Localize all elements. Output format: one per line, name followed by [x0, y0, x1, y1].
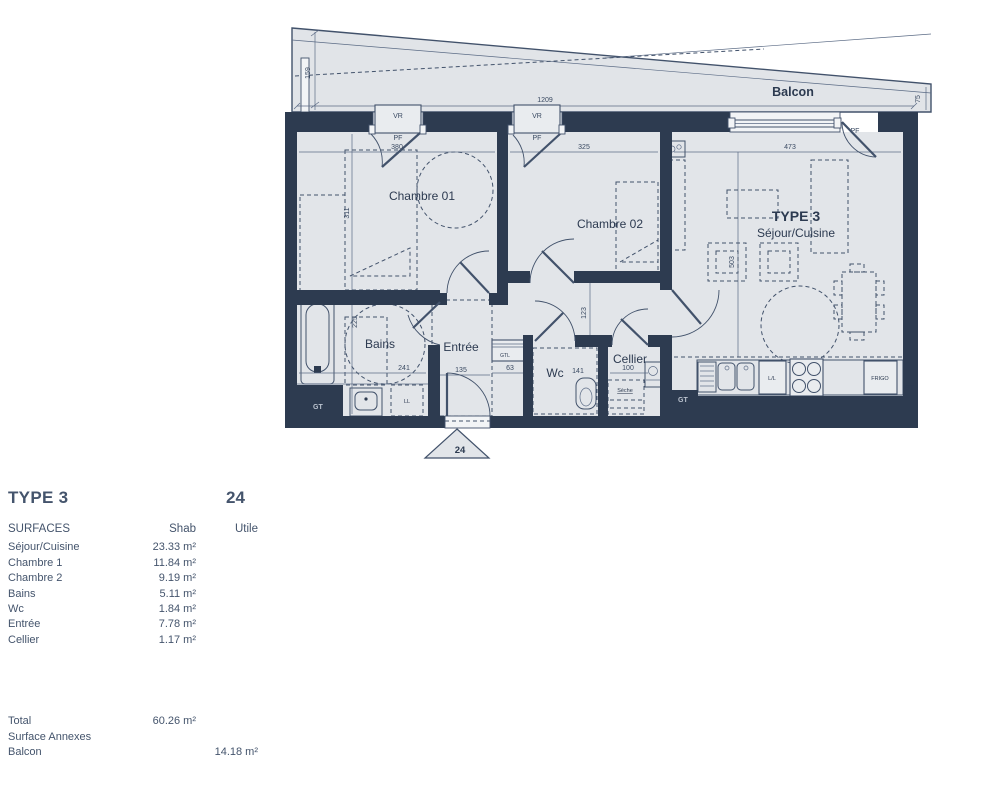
row-label: Cellier — [8, 633, 106, 648]
dim-niche: 63 — [506, 365, 514, 372]
table-row: Bains 5.11 m² — [8, 587, 258, 602]
dim-corridor: 123 — [581, 307, 588, 319]
gt-label-bains: GT — [313, 404, 323, 411]
table-row: Wc 1.84 m² — [8, 602, 258, 617]
dim-sejour-width: 473 — [784, 144, 796, 151]
row-utile — [196, 556, 258, 571]
col-header-shab: Shab — [106, 522, 196, 537]
dim-ch1-width: 380 — [391, 144, 403, 151]
balcon-row: Balcon 14.18 m² — [8, 745, 258, 760]
entrance-sill — [445, 416, 490, 428]
total-label: Total — [8, 714, 106, 729]
room-label-entree: Entrée — [443, 340, 479, 354]
table-row: Cellier 1.17 m² — [8, 633, 258, 648]
dim-balcony-left: 159 — [305, 67, 312, 79]
balcon-label: Balcon — [8, 745, 106, 760]
table-unit-number: 24 — [226, 488, 245, 508]
dim-bains-width: 241 — [398, 365, 410, 372]
unit-number: 24 — [455, 445, 466, 456]
row-utile — [196, 602, 258, 617]
balcony: 1209 159 75 Balcon — [292, 28, 931, 112]
annexes-row: Surface Annexes — [8, 730, 258, 745]
annexes-label: Surface Annexes — [8, 730, 106, 745]
balcony-pier — [301, 58, 309, 112]
dim-balcony-right: 75 — [915, 95, 922, 103]
gt-label-kitchen: GT — [904, 385, 914, 392]
washing-machine-label: LL — [404, 399, 410, 405]
table-column-headers: SURFACES Shab Utile — [8, 522, 258, 537]
row-utile — [196, 633, 258, 648]
table-row: Séjour/Cuisine 23.33 m² — [8, 540, 258, 555]
row-utile — [196, 587, 258, 602]
dryer-label: Sèche — [617, 388, 633, 394]
window-sejour — [730, 112, 840, 132]
surface-table-header: TYPE 3 24 — [8, 488, 258, 522]
total-row: Total 60.26 m² — [8, 714, 258, 729]
row-label: Wc — [8, 602, 106, 617]
table-row: Entrée 7.78 m² — [8, 617, 258, 632]
row-shab: 9.19 m² — [106, 571, 196, 586]
row-label: Chambre 2 — [8, 571, 106, 586]
gtl-label: GTL — [500, 353, 510, 359]
dim-ch1-height: 311 — [344, 207, 351, 218]
fridge-label: FRIGO — [871, 376, 889, 382]
row-label: Chambre 1 — [8, 556, 106, 571]
row-shab: 7.78 m² — [106, 617, 196, 632]
vr-label-ch2: VR — [532, 113, 542, 120]
row-label: Entrée — [8, 617, 106, 632]
dim-balcony-width: 1209 — [537, 97, 553, 104]
room-label-bains: Bains — [365, 337, 395, 351]
col-header-surfaces: SURFACES — [8, 522, 106, 537]
dim-sejour-height: 503 — [729, 256, 736, 268]
dim-bains-height: 225 — [352, 316, 359, 328]
page: 1209 159 75 Balcon — [0, 0, 1000, 800]
room-label-cellier: Cellier — [613, 352, 647, 366]
room-label-sejour: Séjour/Cuisine — [757, 226, 835, 240]
room-label-chambre1: Chambre 01 — [389, 189, 455, 203]
balcony-label: Balcon — [772, 85, 814, 99]
surface-table: TYPE 3 24 SURFACES Shab Utile Séjour/Cui… — [8, 488, 258, 760]
row-utile — [196, 540, 258, 555]
col-header-utile: Utile — [196, 522, 258, 537]
room-label-chambre2: Chambre 02 — [577, 217, 643, 231]
floor-plan: 1209 159 75 Balcon — [0, 0, 1000, 470]
row-shab: 1.17 m² — [106, 633, 196, 648]
row-label: Séjour/Cuisine — [8, 540, 106, 555]
unit-marker: 24 — [425, 429, 489, 458]
room-label-wc: Wc — [546, 366, 563, 380]
dim-wc: 141 — [572, 368, 584, 375]
bathtub-drain — [314, 366, 321, 373]
balcon-value: 14.18 m² — [196, 745, 258, 760]
vr-label-ch1: VR — [393, 113, 403, 120]
table-summary: Total 60.26 m² Surface Annexes Balcon 14… — [8, 714, 258, 760]
table-row: Chambre 2 9.19 m² — [8, 571, 258, 586]
pf-label-ch2: PF — [533, 135, 542, 142]
row-utile — [196, 617, 258, 632]
row-label: Bains — [8, 587, 106, 602]
row-shab: 23.33 m² — [106, 540, 196, 555]
gt-label-cellier: GT — [678, 397, 688, 404]
total-value: 60.26 m² — [106, 714, 196, 729]
row-shab: 11.84 m² — [106, 556, 196, 571]
row-utile — [196, 571, 258, 586]
dim-cellier: 100 — [622, 365, 634, 372]
row-shab: 1.84 m² — [106, 602, 196, 617]
pf-label-ch1: PF — [394, 135, 403, 142]
dishwasher-label: L/L — [768, 376, 776, 382]
row-shab: 5.11 m² — [106, 587, 196, 602]
table-row: Chambre 1 11.84 m² — [8, 556, 258, 571]
dim-ch2-width: 325 — [578, 144, 590, 151]
dim-entree: 135 — [455, 367, 467, 374]
type-label: TYPE 3 — [772, 208, 820, 224]
table-title: TYPE 3 — [8, 488, 68, 507]
